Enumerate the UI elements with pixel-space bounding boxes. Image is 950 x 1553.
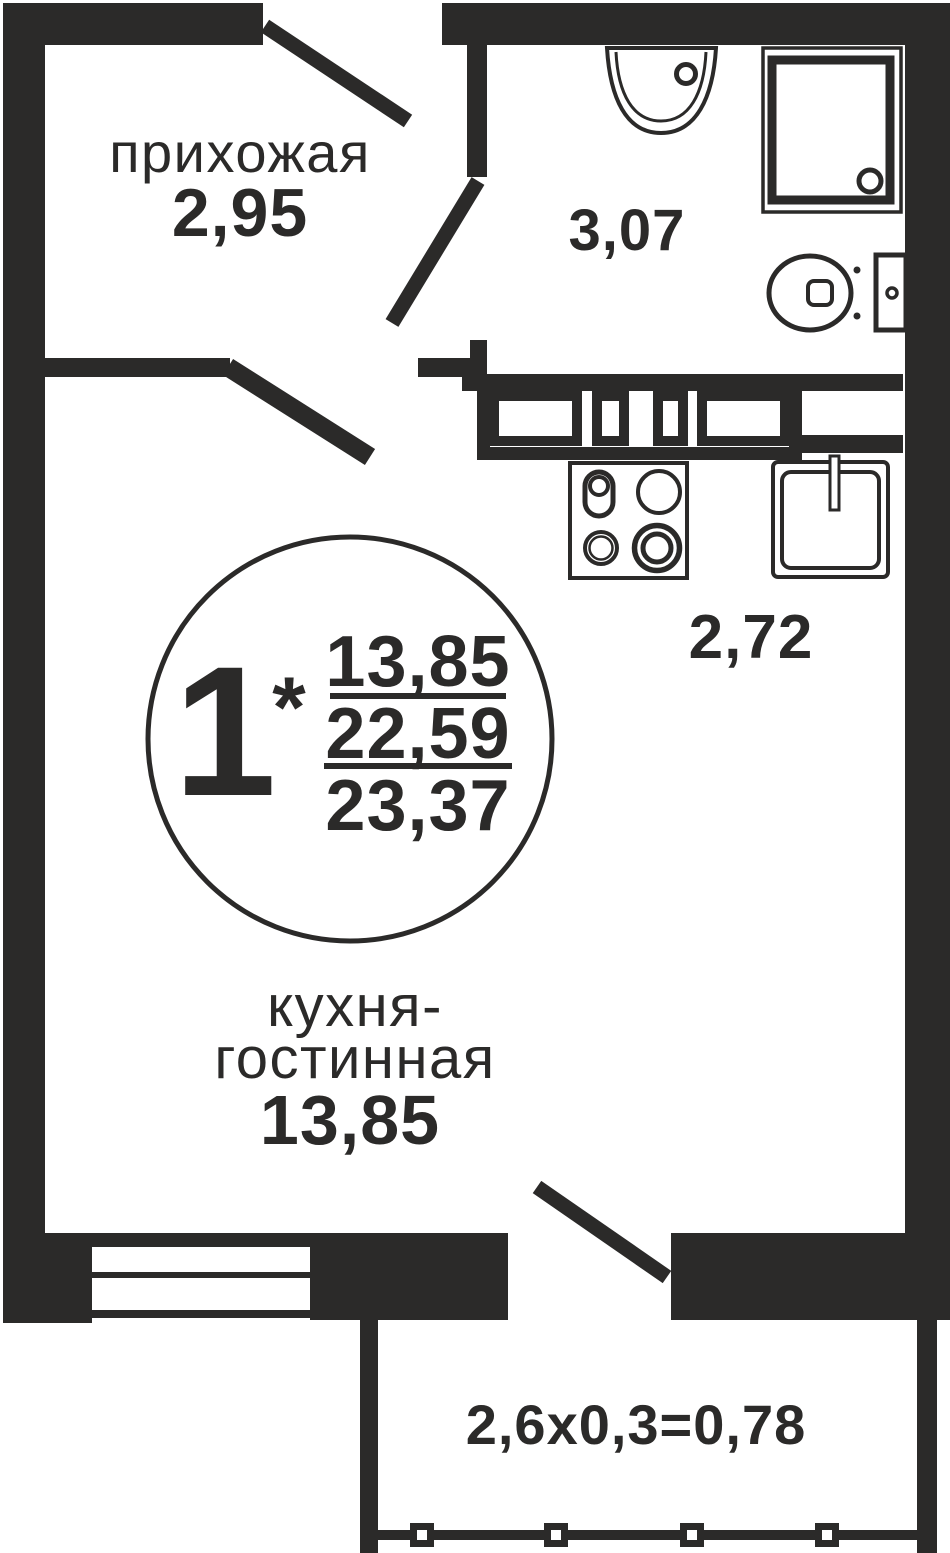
wall-left (3, 3, 45, 1321)
stamp-apartment-area: 22,59 (325, 694, 510, 774)
wall-top-right (442, 3, 950, 45)
window-mid-line (85, 1272, 310, 1278)
kitchen-living-area: 13,85 (260, 1081, 440, 1159)
stamp-living-area: 13,85 (325, 622, 510, 702)
railing-post-hole (417, 1530, 427, 1540)
floor-plan: 1 * 13,85 22,59 23,37 прихожая 2,95 3,07… (0, 0, 950, 1553)
railing-post-hole (551, 1530, 561, 1540)
cabinet-3-inner (663, 401, 678, 436)
stamp-asterisk: * (272, 660, 306, 756)
cabinet-1-inner (499, 401, 572, 436)
window-icon (85, 1233, 310, 1318)
toilet-seat (808, 281, 832, 305)
window-outer-line (85, 1233, 310, 1247)
toilet-hinge-top (854, 267, 861, 274)
cabinet-4-inner (707, 401, 780, 436)
kitchen-sink-icon (773, 456, 888, 577)
area-stamp: 1 * 13,85 22,59 23,37 (148, 537, 552, 941)
hallway-area: 2,95 (172, 175, 308, 251)
window-inner-line (85, 1310, 310, 1318)
shower-icon (763, 48, 901, 212)
stove-burner-capsule-dot (590, 477, 608, 495)
stamp-total-area: 23,37 (325, 766, 510, 846)
kitchen-sink-faucet (830, 456, 839, 510)
wall-balcony-right-strip (917, 1318, 937, 1553)
wall-bottom-right (671, 1233, 950, 1320)
shower-drain (859, 170, 881, 192)
bathroom-sink-faucet (677, 65, 696, 84)
toilet-icon (769, 255, 906, 330)
bathroom-area: 3,07 (569, 198, 686, 263)
floor-plan-canvas: 1 * 13,85 22,59 23,37 прихожая 2,95 3,07… (0, 0, 950, 1553)
bathroom-door-icon (392, 181, 478, 323)
balcony-dimensions: 2,6x0,3=0,78 (466, 1393, 807, 1456)
wall-hallway-bottom (43, 358, 230, 377)
toilet-hinge-bottom (854, 313, 861, 320)
bathroom-sink-icon (607, 48, 716, 133)
wall-bathroom-left-stub (467, 45, 487, 177)
balcony-railing-icon (378, 1523, 917, 1547)
railing-post-hole (687, 1530, 697, 1540)
wall-bottom-corner (3, 1233, 92, 1323)
wall-niche-bar (798, 435, 903, 453)
entrance-door-icon (265, 26, 408, 121)
railing-post-hole (822, 1530, 832, 1540)
wall-kitchen-stub-vertical (470, 340, 487, 377)
kitchen-zone-area: 2,72 (689, 603, 814, 672)
balcony-door-icon (537, 1187, 667, 1277)
wall-right (905, 3, 950, 1240)
wall-bottom-mid (310, 1233, 508, 1320)
stamp-room-count: 1 (174, 629, 277, 835)
wall-corridor-diagonal (228, 367, 370, 457)
cabinet-2-inner (602, 401, 619, 436)
stove-icon (570, 463, 687, 578)
stove-burner-top-right (638, 471, 680, 513)
wall-balcony-left-strip (360, 1320, 378, 1553)
kitchen-cabinets-icon (477, 377, 802, 460)
toilet-button (887, 288, 897, 298)
